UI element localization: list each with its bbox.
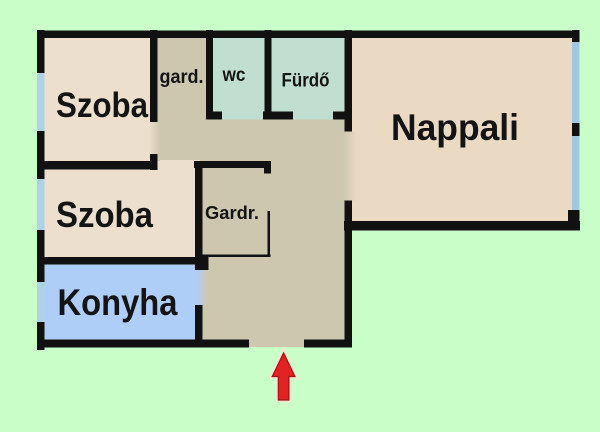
- svg-text:Gardr.: Gardr.: [205, 203, 259, 223]
- svg-text:wc: wc: [222, 65, 246, 86]
- svg-text:Nappali: Nappali: [391, 107, 519, 148]
- svg-text:Szoba: Szoba: [56, 86, 148, 125]
- svg-text:Konyha: Konyha: [58, 282, 178, 323]
- svg-text:gard.: gard.: [160, 67, 204, 88]
- svg-text:Fürdő: Fürdő: [282, 71, 330, 92]
- svg-text:Szoba: Szoba: [56, 194, 154, 235]
